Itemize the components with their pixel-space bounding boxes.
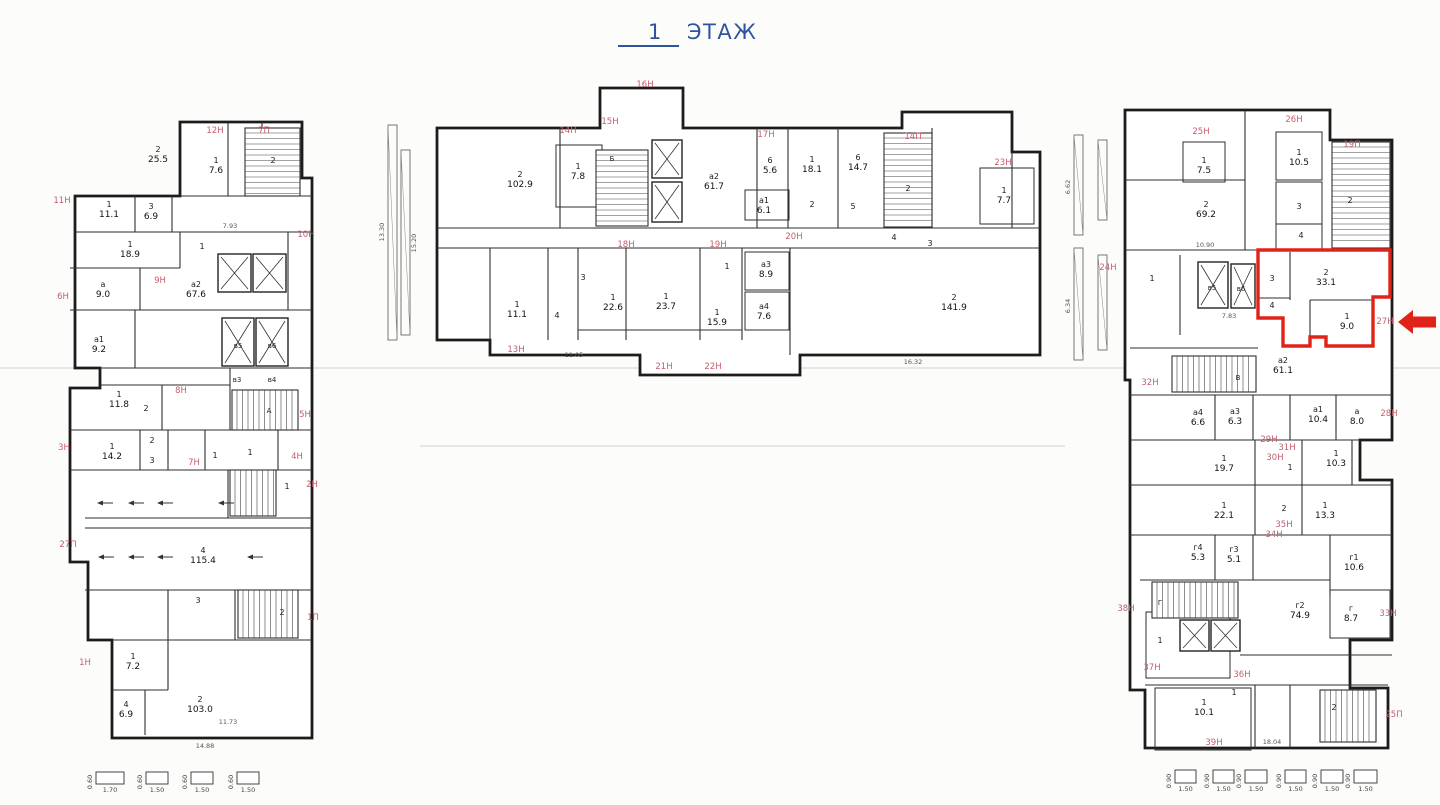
svg-text:7.2: 7.2 [126,662,140,672]
svg-text:в4: в4 [268,376,277,384]
floor-title: 1ЭТАЖ [618,20,757,47]
svg-text:67.6: 67.6 [186,290,206,300]
svg-text:2: 2 [1323,268,1328,277]
svg-text:36Н: 36Н [1233,670,1250,680]
svg-text:1П: 1П [307,613,319,623]
svg-text:34Н: 34Н [1265,530,1282,540]
svg-text:1: 1 [1201,156,1206,165]
svg-text:14П: 14П [904,132,921,142]
svg-text:в5: в5 [1208,284,1217,292]
svg-text:1: 1 [1344,312,1349,321]
svg-text:27П: 27П [59,540,76,550]
svg-text:18.1: 18.1 [802,165,822,175]
svg-text:1: 1 [109,442,114,451]
svg-text:1: 1 [809,155,814,164]
svg-text:17Н: 17Н [757,130,774,140]
svg-text:32Н: 32Н [1141,378,1158,388]
svg-text:74.9: 74.9 [1290,611,1310,621]
svg-text:2: 2 [155,145,160,154]
svg-text:4: 4 [1298,231,1303,240]
svg-text:г: г [1349,604,1353,613]
svg-text:3: 3 [148,202,153,211]
svg-text:10.4: 10.4 [1308,415,1328,425]
svg-text:1: 1 [575,162,580,171]
svg-text:1: 1 [106,200,111,209]
svg-text:11.05: 11.05 [565,351,584,359]
svg-text:а2: а2 [1278,356,1288,365]
svg-text:а2: а2 [191,280,201,289]
svg-text:6.62: 6.62 [1064,180,1072,194]
svg-text:6Н: 6Н [57,292,69,302]
svg-text:19П: 19П [1343,140,1360,150]
svg-text:5.6: 5.6 [763,166,778,176]
svg-text:103.0: 103.0 [187,705,213,715]
legend-right: 1.500.901.500.901.500.901.500.901.500.90… [1165,770,1377,793]
svg-text:10.5: 10.5 [1289,158,1309,168]
scanned-floor-plan-page: 13.3015.206.626.34225.517.62111.136.9118… [0,0,1440,805]
svg-text:1: 1 [212,451,217,460]
svg-text:25Н: 25Н [1192,127,1209,137]
svg-text:7.83: 7.83 [1222,312,1236,320]
svg-text:2: 2 [197,695,202,704]
svg-text:1: 1 [1287,463,1292,472]
svg-text:11.8: 11.8 [109,400,129,410]
svg-text:5: 5 [850,202,855,211]
svg-text:7.8: 7.8 [571,172,586,182]
svg-text:2: 2 [1347,196,1352,205]
building-left: 225.517.62111.136.9118.91а9.0а267.6а19.2… [53,122,319,750]
svg-text:6: 6 [767,156,772,165]
svg-text:23Н: 23Н [994,158,1011,168]
svg-text:3: 3 [1296,202,1301,211]
svg-text:г2: г2 [1295,601,1304,610]
svg-text:14.88: 14.88 [196,742,215,750]
svg-text:1: 1 [724,262,729,271]
svg-text:1Н: 1Н [79,658,91,668]
svg-text:3Н: 3Н [58,443,70,453]
svg-text:в6: в6 [268,342,277,350]
svg-text:2: 2 [1203,200,1208,209]
svg-text:а3: а3 [1230,407,1240,416]
svg-text:7.7: 7.7 [997,196,1011,206]
svg-text:7.5: 7.5 [1197,166,1211,176]
svg-text:1: 1 [130,652,135,661]
svg-text:а: а [1355,407,1360,416]
svg-text:10Н: 10Н [297,230,314,240]
svg-text:5.1: 5.1 [1227,555,1241,565]
svg-text:19.7: 19.7 [1214,464,1234,474]
svg-text:13.30: 13.30 [378,223,386,242]
svg-text:5Н: 5Н [299,410,311,420]
svg-text:102.9: 102.9 [507,180,533,190]
svg-text:6.34: 6.34 [1064,299,1072,313]
svg-text:6.1: 6.1 [757,206,771,216]
svg-text:7.93: 7.93 [223,222,237,230]
svg-text:7.6: 7.6 [757,312,772,322]
svg-text:а2: а2 [709,172,719,181]
svg-text:в5: в5 [234,342,243,350]
svg-text:0.90: 0.90 [1203,774,1211,788]
legend-left: 1.700.601.500.601.500.601.500.60 [86,772,259,794]
svg-text:11.1: 11.1 [507,310,527,320]
svg-text:9.0: 9.0 [1340,322,1355,332]
svg-text:14.7: 14.7 [848,163,868,173]
highlight-arrow-icon [1398,310,1436,334]
svg-text:1.50: 1.50 [1249,785,1263,793]
svg-text:1: 1 [1157,636,1162,645]
svg-text:4: 4 [554,311,559,320]
svg-text:2: 2 [809,200,814,209]
svg-text:4Н: 4Н [291,452,303,462]
svg-text:8.7: 8.7 [1344,614,1358,624]
svg-text:1: 1 [514,300,519,309]
svg-text:1: 1 [1296,148,1301,157]
svg-text:1: 1 [213,156,218,165]
building-right: 17.5269.2110.53421в5в634233.119.0а261.1В… [1099,110,1402,750]
svg-text:22.1: 22.1 [1214,511,1234,521]
svg-text:1: 1 [1231,688,1236,697]
svg-text:0.90: 0.90 [1344,774,1352,788]
svg-text:2: 2 [270,156,275,165]
svg-text:1: 1 [663,292,668,301]
svg-text:1: 1 [116,390,121,399]
svg-text:1.50: 1.50 [1216,785,1230,793]
svg-text:13Н: 13Н [507,345,524,355]
svg-text:6.6: 6.6 [1191,418,1206,428]
svg-text:0.90: 0.90 [1311,774,1319,788]
svg-text:39Н: 39Н [1205,738,1222,748]
svg-text:3: 3 [927,239,932,248]
svg-text:29Н: 29Н [1260,435,1277,445]
svg-text:10.3: 10.3 [1326,459,1346,469]
svg-text:37Н: 37Н [1143,663,1160,673]
svg-text:25П: 25П [1385,710,1402,720]
svg-text:1: 1 [610,293,615,302]
svg-text:3: 3 [195,596,200,605]
svg-text:2: 2 [279,608,284,617]
svg-text:31Н: 31Н [1278,443,1295,453]
svg-text:а3: а3 [761,260,771,269]
svg-text:22Н: 22Н [704,362,721,372]
svg-text:а: а [101,280,106,289]
svg-text:10.6: 10.6 [1344,563,1364,573]
svg-text:в3: в3 [233,376,242,384]
svg-text:61.7: 61.7 [704,182,724,192]
svg-text:0.60: 0.60 [227,775,235,789]
svg-text:В: В [1236,374,1241,382]
svg-text:6: 6 [855,153,860,162]
svg-text:11.1: 11.1 [99,210,119,220]
svg-text:6.3: 6.3 [1228,417,1242,427]
svg-text:27Н: 27Н [1376,317,1393,327]
svg-text:1: 1 [127,240,132,249]
svg-text:33Н: 33Н [1379,609,1396,619]
svg-text:0.60: 0.60 [86,775,94,789]
svg-text:1.50: 1.50 [195,786,209,794]
svg-text:15Н: 15Н [601,117,618,127]
svg-text:г1: г1 [1349,553,1358,562]
svg-text:2: 2 [905,184,910,193]
svg-text:Б: Б [610,155,615,163]
svg-text:а4: а4 [1193,408,1203,417]
svg-text:в6: в6 [1237,285,1246,293]
svg-text:8Н: 8Н [175,386,187,396]
svg-text:20Н: 20Н [785,232,802,242]
svg-text:1: 1 [1221,454,1226,463]
svg-text:1: 1 [1322,501,1327,510]
svg-text:30Н: 30Н [1266,453,1283,463]
building-center: 2102.917.8Б65.6118.1614.7217.7а261.7а16.… [437,80,1040,375]
svg-text:14.2: 14.2 [102,452,122,462]
svg-text:1.50: 1.50 [1358,785,1372,793]
svg-text:а4: а4 [759,302,769,311]
svg-text:а1: а1 [1313,405,1323,414]
svg-text:5.3: 5.3 [1191,553,1205,563]
svg-text:6.9: 6.9 [119,710,134,720]
svg-text:9Н: 9Н [154,276,166,286]
svg-text:15.20: 15.20 [410,234,418,253]
svg-text:25.5: 25.5 [148,155,168,165]
svg-text:8.0: 8.0 [1350,417,1365,427]
svg-text:14Н: 14Н [559,126,576,136]
svg-text:8.9: 8.9 [759,270,774,280]
svg-text:0.90: 0.90 [1235,774,1243,788]
svg-text:10.1: 10.1 [1194,708,1214,718]
svg-text:15.9: 15.9 [707,318,727,328]
svg-text:12Н: 12Н [206,126,223,136]
svg-text:11Н: 11Н [53,196,70,206]
svg-text:7П: 7П [258,126,270,136]
svg-text:18.04: 18.04 [1263,738,1282,746]
svg-text:4: 4 [123,700,128,709]
svg-text:1: 1 [247,448,252,457]
svg-text:141.9: 141.9 [941,303,967,313]
svg-text:а1: а1 [94,335,104,344]
svg-text:10.90: 10.90 [1196,241,1215,249]
svg-text:0.90: 0.90 [1165,774,1173,788]
svg-text:38Н: 38Н [1117,604,1134,614]
svg-text:115.4: 115.4 [190,556,216,566]
svg-text:1.50: 1.50 [241,786,255,794]
svg-text:1: 1 [199,242,204,251]
svg-text:А: А [267,407,272,415]
svg-text:0.60: 0.60 [181,775,189,789]
svg-text:1: 1 [1333,449,1338,458]
svg-text:3: 3 [149,456,154,465]
svg-text:7.6: 7.6 [209,166,224,176]
svg-text:1.50: 1.50 [150,786,164,794]
svg-text:г3: г3 [1229,545,1238,554]
svg-text:11.73: 11.73 [219,718,238,726]
floor-word: ЭТАЖ [687,20,757,44]
svg-text:33.1: 33.1 [1316,278,1336,288]
svg-text:7Н: 7Н [188,458,200,468]
svg-text:1: 1 [1001,186,1006,195]
svg-text:61.1: 61.1 [1273,366,1293,376]
svg-text:3: 3 [1269,274,1274,283]
svg-text:1.50: 1.50 [1325,785,1339,793]
svg-text:1.70: 1.70 [103,786,117,794]
svg-text:19Н: 19Н [709,240,726,250]
svg-text:35Н: 35Н [1275,520,1292,530]
svg-text:1.50: 1.50 [1178,785,1192,793]
svg-text:4: 4 [1269,301,1274,310]
svg-text:1: 1 [1201,698,1206,707]
svg-text:1: 1 [284,482,289,491]
svg-text:16Н: 16Н [636,80,653,90]
floor-plan-svg: 13.3015.206.626.34225.517.62111.136.9118… [0,0,1440,805]
svg-text:13.3: 13.3 [1315,511,1335,521]
svg-text:3: 3 [580,273,585,282]
svg-text:23.7: 23.7 [656,302,676,312]
svg-text:4: 4 [200,546,205,555]
svg-text:0.90: 0.90 [1275,774,1283,788]
svg-text:4: 4 [891,233,896,242]
svg-text:г4: г4 [1193,543,1202,552]
svg-text:24Н: 24Н [1099,263,1116,273]
svg-text:69.2: 69.2 [1196,210,1216,220]
svg-text:2: 2 [517,170,522,179]
svg-text:18.9: 18.9 [120,250,140,260]
svg-text:2: 2 [951,293,956,302]
svg-text:а1: а1 [759,196,769,205]
svg-text:1.50: 1.50 [1288,785,1302,793]
svg-text:2Н: 2Н [306,480,318,490]
svg-text:2: 2 [1281,504,1286,513]
svg-text:21Н: 21Н [655,362,672,372]
svg-text:9.2: 9.2 [92,345,106,355]
svg-text:6.9: 6.9 [144,212,159,222]
svg-text:16.32: 16.32 [904,358,923,366]
svg-text:18Н: 18Н [617,240,634,250]
svg-text:28Н: 28Н [1380,409,1397,419]
svg-text:26Н: 26Н [1285,115,1302,125]
svg-text:1: 1 [1221,501,1226,510]
svg-text:22.6: 22.6 [603,303,623,313]
svg-text:0.60: 0.60 [136,775,144,789]
svg-text:2: 2 [143,404,148,413]
svg-text:1: 1 [1149,274,1154,283]
svg-text:1: 1 [714,308,719,317]
svg-text:Г: Г [1158,599,1162,607]
svg-text:9.0: 9.0 [96,290,111,300]
floor-number: 1 [618,20,679,47]
svg-text:2: 2 [1331,703,1336,712]
svg-text:2: 2 [149,436,154,445]
